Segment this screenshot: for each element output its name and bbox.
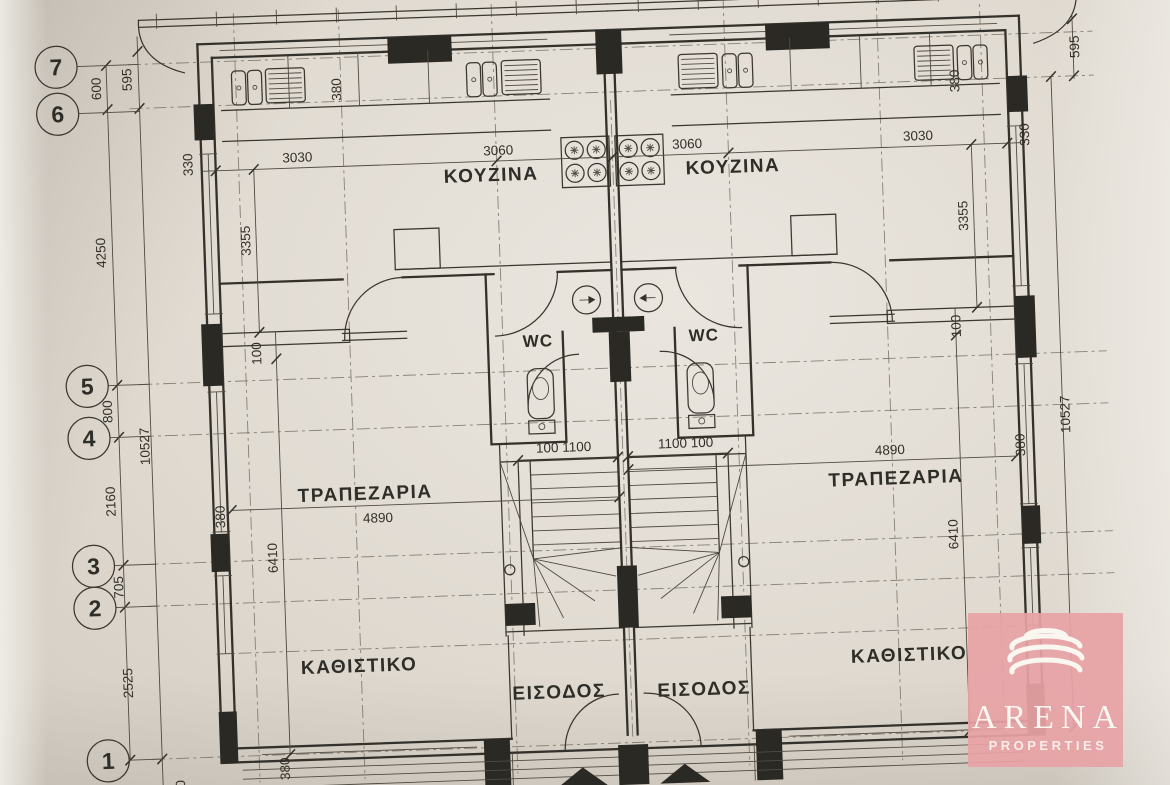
dim-10527-right: 10527 bbox=[1057, 395, 1073, 433]
dim-100-right: 100 bbox=[948, 315, 964, 338]
grid-bubbles: 7 6 5 4 3 2 1 bbox=[34, 43, 163, 783]
dim-3355-left: 3355 bbox=[238, 226, 254, 257]
dim-4890-right: 4890 bbox=[875, 442, 906, 458]
dim-380-top-left: 380 bbox=[329, 78, 345, 101]
dim-3060-left: 3060 bbox=[483, 142, 514, 158]
room-label-entrance-left: ΕΙΣΟΔΟΣ bbox=[512, 681, 606, 705]
dim-380-bottom: 380 bbox=[277, 757, 293, 780]
dim-330-left: 330 bbox=[180, 153, 196, 176]
dim-3030-left: 3030 bbox=[282, 149, 313, 165]
room-label-wc-left: WC bbox=[522, 331, 553, 351]
room-label-living-right: ΚΑΘΙΣΤΙΚΟ bbox=[851, 643, 968, 668]
room-label-dining-right: ΤΡΑΠΕΖΑΡΙΑ bbox=[828, 466, 964, 492]
dim-4250: 4250 bbox=[93, 238, 109, 269]
scanned-floor-plan-photo: 7 6 5 4 3 2 1 600 595 595 4250 800 2160 … bbox=[0, 0, 1170, 785]
grid-bubble-7: 7 bbox=[49, 54, 63, 80]
room-label-dining-left: ΤΡΑΠΕΖΑΡΙΑ bbox=[297, 481, 433, 507]
dim-3355-right: 3355 bbox=[955, 200, 971, 231]
room-label-living-left: ΚΑΘΙΣΤΙΚΟ bbox=[301, 654, 418, 679]
room-label-kitchen-right: ΚΟΥΖΙΝΑ bbox=[685, 155, 780, 179]
dim-3060-right: 3060 bbox=[672, 136, 703, 152]
dim-6410-right: 6410 bbox=[945, 519, 961, 550]
dim-595-right: 595 bbox=[1067, 35, 1083, 58]
watermark-title: ARENA bbox=[972, 699, 1124, 736]
dim-380-mid-left: 380 bbox=[212, 505, 228, 528]
dim-10527-left: 10527 bbox=[137, 427, 153, 465]
dim-600: 600 bbox=[88, 77, 104, 100]
dim-595-left: 595 bbox=[119, 68, 135, 91]
dim-bottom-partial: 800 bbox=[173, 780, 189, 785]
floor-plan: 7 6 5 4 3 2 1 600 595 595 4250 800 2160 … bbox=[33, 0, 1121, 785]
room-label-entrance-right: ΕΙΣΟΔΟΣ bbox=[657, 677, 751, 701]
dim-6410-left: 6410 bbox=[265, 543, 281, 574]
floor-plan-canvas: 7 6 5 4 3 2 1 600 595 595 4250 800 2160 … bbox=[0, 0, 1170, 785]
room-label-kitchen-left: ΚΟΥΖΙΝΑ bbox=[443, 164, 538, 188]
dim-380-top-right: 380 bbox=[947, 69, 963, 92]
dim-705: 705 bbox=[111, 576, 127, 599]
dimension-labels: 600 595 595 4250 800 2160 705 2525 10527… bbox=[87, 35, 1107, 785]
dim-800: 800 bbox=[100, 400, 116, 423]
dim-stair-right: 1100 100 bbox=[658, 435, 714, 452]
grid-bubble-6: 6 bbox=[51, 101, 65, 127]
dim-3030-right: 3030 bbox=[903, 128, 934, 144]
dim-330-right: 330 bbox=[1017, 123, 1033, 146]
dim-4890-left: 4890 bbox=[363, 510, 394, 526]
watermark-subtitle: PROPERTIES bbox=[989, 738, 1108, 753]
room-label-wc-right: WC bbox=[688, 325, 719, 345]
dim-380-mid-right: 380 bbox=[1012, 433, 1028, 456]
grid-bubble-2: 2 bbox=[88, 595, 102, 621]
dim-2525: 2525 bbox=[120, 668, 136, 699]
dimension-lines bbox=[100, 4, 1103, 785]
grid-bubble-5: 5 bbox=[80, 373, 94, 399]
grid-bubble-3: 3 bbox=[87, 553, 101, 579]
dim-2160: 2160 bbox=[103, 486, 119, 517]
dim-stair-left: 100 1100 bbox=[536, 439, 592, 456]
dim-100-left: 100 bbox=[249, 342, 265, 365]
watermark: ARENA PROPERTIES bbox=[968, 613, 1124, 767]
grid-bubble-4: 4 bbox=[82, 425, 96, 451]
grid-bubble-1: 1 bbox=[101, 748, 115, 774]
